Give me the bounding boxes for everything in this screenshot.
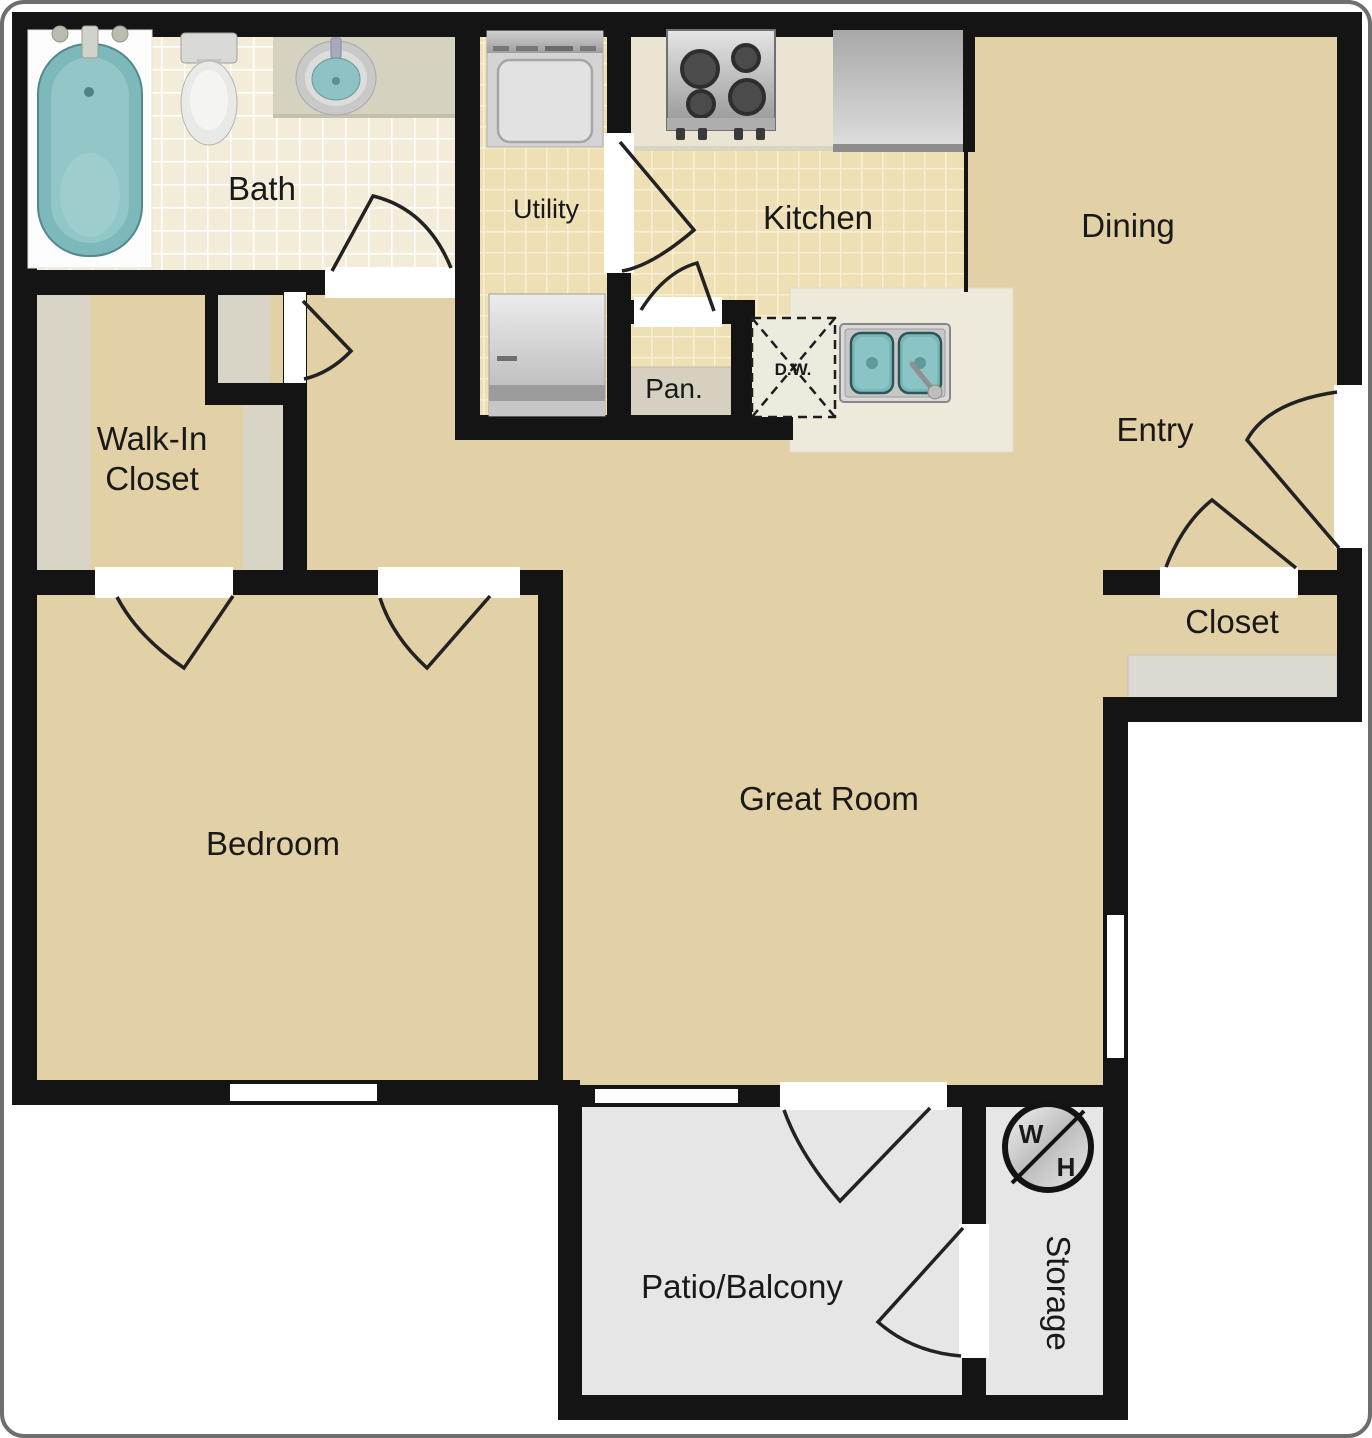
toilet-tank [181,33,237,63]
wall-segment [455,30,480,440]
dishwasher-label: D.W. [775,360,812,379]
door-gap-walkin-closet [284,292,306,383]
utility-label: Utility [513,194,579,224]
kitchen-sink [840,324,950,402]
bathtub-handle-icon [52,26,68,42]
walkin-closet-shelf-left [37,287,90,570]
pantry-label: Pan. [645,373,703,404]
counter-divider-line [964,140,968,292]
stove [667,30,775,140]
kitchen-sink-faucet-base [928,385,942,399]
door-gap-storage [959,1224,989,1358]
stove-burner [730,80,764,114]
floor-plan: W H Bath Utility Kitchen Dining Entry Cl… [0,0,1372,1438]
door-gap-bedroom-closet [95,567,233,598]
bathtub [28,26,152,268]
dryer-base [489,401,605,416]
dryer [489,294,605,416]
wall-segment [1337,12,1362,722]
refrigerator-body [833,30,963,148]
bathtub-handle-icon [112,26,128,42]
stove-burner [733,45,759,71]
toilet [181,33,237,145]
walkin-closet-shelf-right [243,405,290,570]
door-gap-front-entry [1334,385,1365,548]
door-gap-bedroom [378,567,520,598]
water-heater-w-label: W [1019,1119,1044,1149]
great-room-label: Great Room [739,780,919,817]
outside-bottom-right [1128,722,1372,1438]
walkin-closet-label-line2: Closet [105,460,199,497]
window-gap-patio [595,1089,738,1103]
wall-segment [558,1085,582,1420]
kitchen-counter-edge [631,146,833,151]
kitchen-sink-drain [866,357,878,369]
bathtub-spout-icon [82,26,98,58]
bath-label: Bath [228,170,296,207]
toilet-seat [190,70,228,130]
patio-balcony-label: Patio/Balcony [641,1268,843,1305]
bath-counter-edge [273,114,457,118]
bedroom-label: Bedroom [206,825,340,862]
wall-segment [538,570,563,1105]
refrigerator-edge [833,144,963,152]
water-heater-h-label: H [1057,1152,1076,1182]
bathtub-highlight [60,153,120,237]
walkin-closet-label-line1: Walk-In [97,420,208,457]
walkin-closet-nook-shelf [218,287,270,387]
washer-knob [493,46,509,51]
floor-plan-canvas: W H Bath Utility Kitchen Dining Entry Cl… [0,0,1372,1438]
dining-label: Dining [1081,207,1175,244]
bath-sink-faucet-icon [331,38,341,58]
bath-sink-drain [332,77,340,85]
door-gap-patio [780,1082,947,1110]
washer [487,31,603,147]
washer-knob [516,46,538,51]
washer-knob [545,46,573,51]
storage-label: Storage [1040,1235,1077,1351]
dryer-handle [497,356,517,361]
kitchen-label: Kitchen [763,199,873,236]
stove-body [667,30,775,130]
outside-bottom-left [0,1105,558,1438]
dryer-band [489,385,605,403]
stove-burner [688,91,714,117]
wall-segment [1103,697,1128,1420]
wall-segment [205,383,283,405]
window-gap-bedroom [230,1084,377,1101]
water-heater: W H [1005,1104,1091,1190]
entry-closet-label: Closet [1185,603,1279,640]
wall-segment [1103,697,1362,722]
washer-lid [498,60,592,142]
entry-closet-shelf [1128,655,1337,700]
stove-burner [682,51,718,87]
wall-segment [558,1395,1128,1420]
bathtub-drain [84,87,94,97]
refrigerator [833,30,963,152]
washer-knob [580,46,596,51]
door-gap-entry-closet [1160,567,1298,598]
window-gap-great-room [1107,915,1124,1058]
entry-label: Entry [1116,411,1194,448]
door-gap-bath [325,267,455,298]
